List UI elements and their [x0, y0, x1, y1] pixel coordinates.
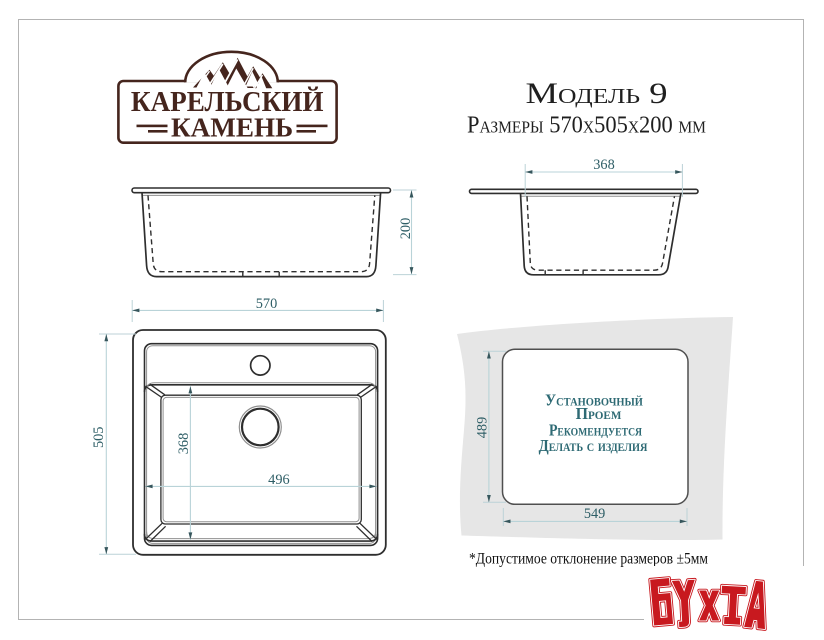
svg-text:368: 368	[176, 433, 192, 454]
svg-text:570: 570	[256, 296, 277, 312]
svg-text:505: 505	[91, 427, 107, 448]
svg-text:496: 496	[268, 472, 289, 488]
svg-text:549: 549	[584, 506, 605, 522]
svg-text:200: 200	[398, 218, 414, 239]
svg-text:КАМЕНЬ: КАМЕНЬ	[171, 112, 293, 142]
svg-text:Модель 9: Модель 9	[526, 77, 668, 110]
svg-text:368: 368	[593, 157, 614, 173]
svg-text:Размеры 570х505х200 мм: Размеры 570х505х200 мм	[467, 112, 706, 139]
svg-text:489: 489	[474, 417, 490, 438]
svg-text:*Допустимое отклонение размеро: *Допустимое отклонение размеров ±5мм	[469, 550, 708, 567]
svg-text:Делать с изделия: Делать с изделия	[539, 436, 648, 455]
